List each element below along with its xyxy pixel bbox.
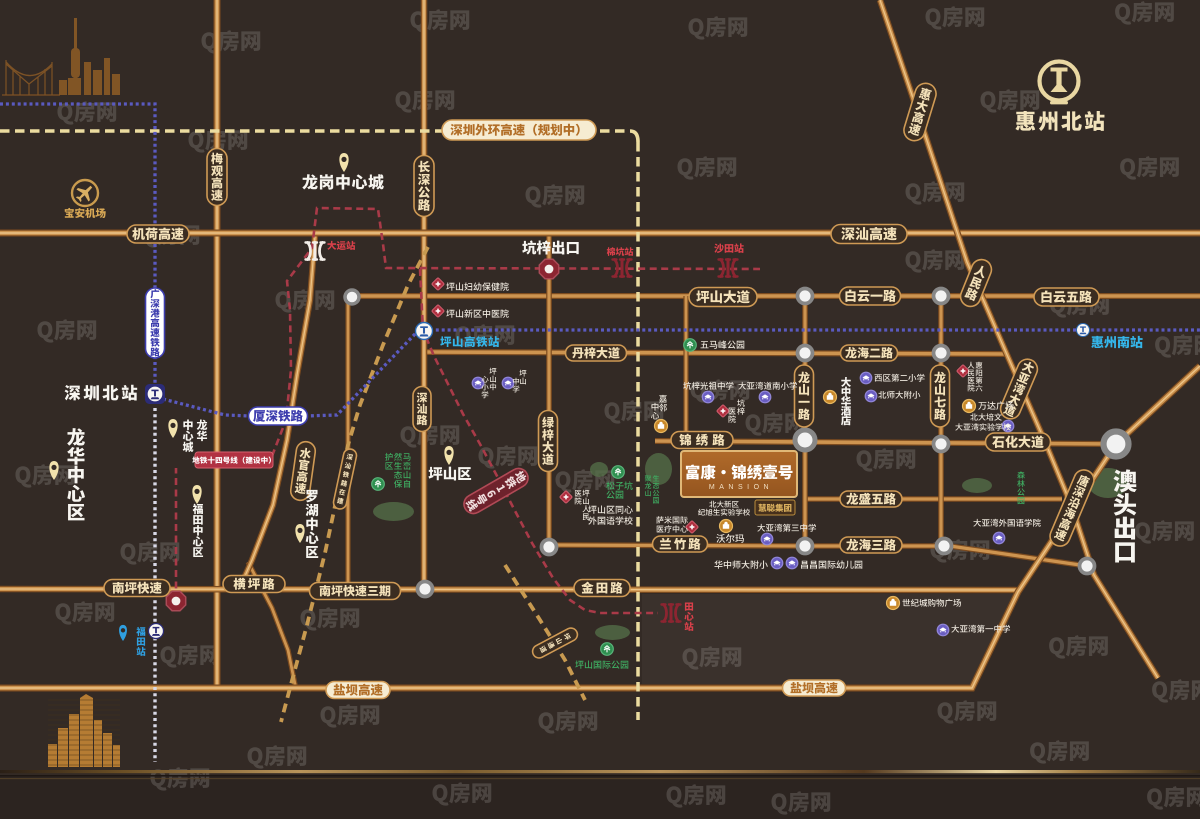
svg-text:MANSION: MANSION	[709, 484, 773, 491]
